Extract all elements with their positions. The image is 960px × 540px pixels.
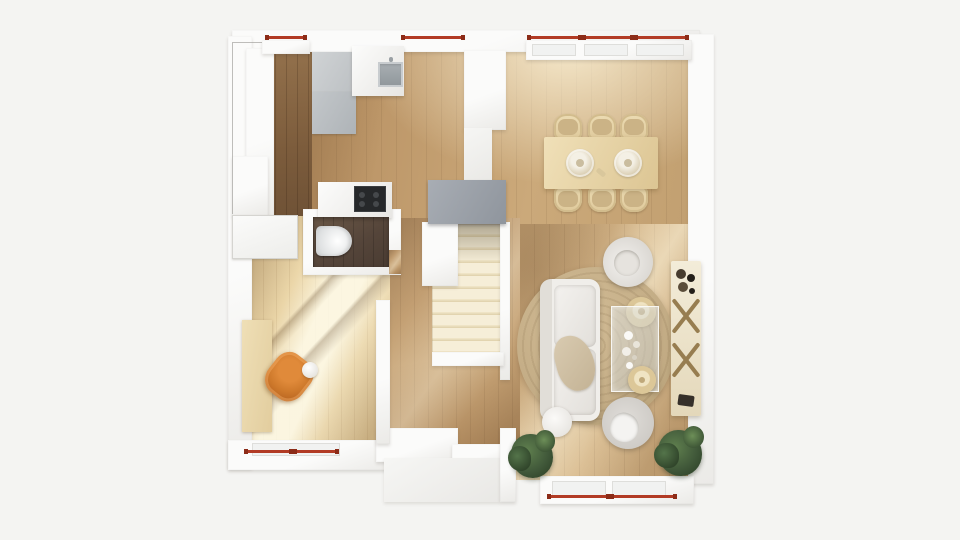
dining-window-sill — [526, 40, 692, 60]
sofa — [540, 279, 600, 421]
round-armchair — [602, 397, 654, 449]
console-x-leg — [673, 341, 699, 381]
window-mullion — [578, 35, 586, 40]
base-counter — [318, 182, 392, 218]
coffee-table-decor — [624, 331, 633, 340]
console-x-leg — [673, 297, 699, 337]
console-table — [671, 261, 701, 416]
tall-oven-cabinet — [464, 128, 492, 184]
stair-side-wall — [422, 222, 458, 286]
window-mullion — [289, 449, 297, 454]
bathroom-door-opening — [389, 250, 401, 274]
potted-plant — [658, 430, 702, 476]
small-stool — [302, 362, 318, 378]
sink-counter — [352, 46, 404, 96]
window-pane — [584, 44, 628, 56]
kitchen-sink — [378, 62, 403, 87]
dining-chair — [620, 186, 648, 212]
white-wardrobe — [232, 215, 298, 259]
window-mullion — [630, 35, 638, 40]
dinner-plate — [614, 149, 642, 177]
dining-chair — [588, 186, 616, 212]
kitchen-cabinet-gray — [312, 52, 356, 92]
window-marker — [402, 36, 464, 39]
round-armchair — [603, 237, 653, 287]
round-side-table — [628, 366, 656, 394]
wall-right — [688, 34, 714, 484]
dining-table — [544, 137, 658, 189]
window-marker — [548, 495, 676, 498]
entry-porch — [384, 458, 500, 502]
wall-kitchen-dining-stub — [464, 50, 506, 130]
cooktop — [354, 186, 386, 212]
window-marker — [266, 36, 306, 39]
stair-base — [432, 352, 504, 366]
living-window-pane — [612, 481, 666, 496]
potted-plant — [511, 434, 553, 478]
console-item — [677, 394, 694, 407]
window-pane — [532, 44, 576, 56]
window-mullion — [606, 494, 614, 499]
wall-cutplane-outline — [232, 42, 279, 214]
table-utensil — [596, 167, 607, 177]
toilet — [316, 226, 352, 256]
kitchen-cabinet-gray — [312, 92, 356, 134]
living-window-pane — [552, 481, 606, 496]
wall-study-south — [376, 300, 390, 444]
console-decor-dark — [676, 269, 686, 279]
pantry-window-sill — [262, 40, 310, 54]
dinner-plate — [566, 149, 594, 177]
window-marker — [245, 450, 338, 453]
dining-chair — [554, 186, 582, 212]
window-pane — [636, 44, 684, 56]
stair-landing — [428, 180, 506, 224]
window-marker — [528, 36, 688, 39]
floor-plan-canvas — [0, 0, 960, 540]
